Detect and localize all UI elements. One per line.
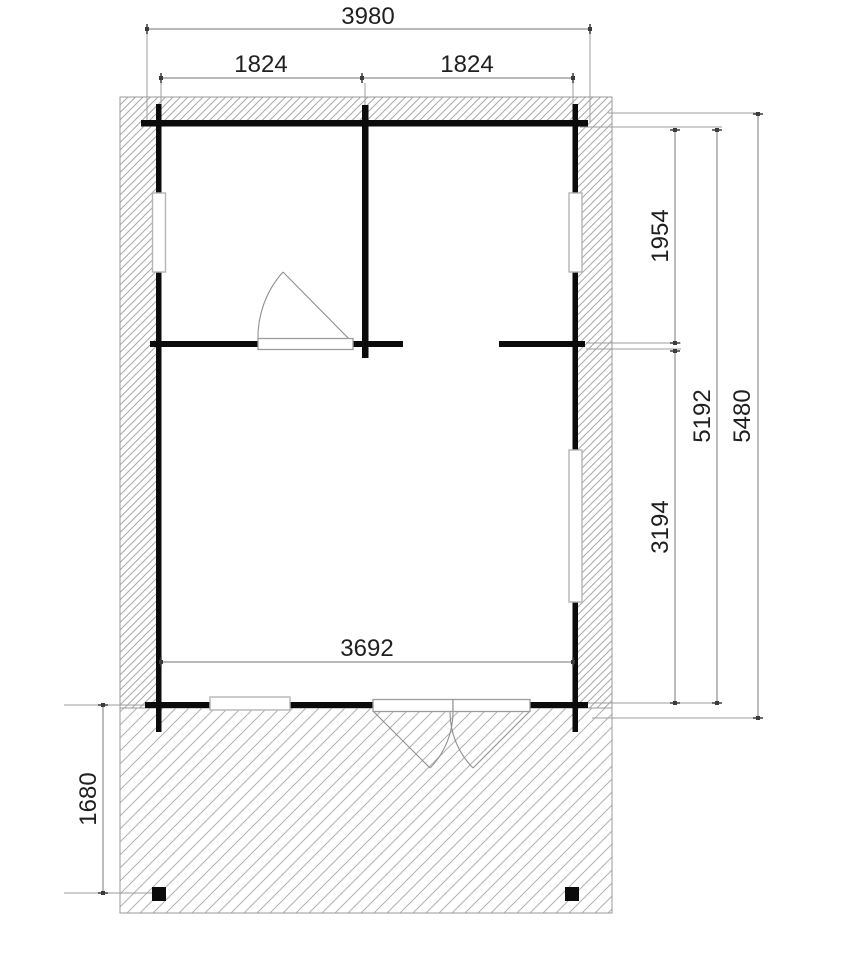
dim-overall-length: 5480 xyxy=(729,112,763,720)
dim-terrace-depth-label: 1680 xyxy=(75,772,102,825)
right-wall-window-lower xyxy=(569,450,582,602)
dim-bay-right-label: 1824 xyxy=(440,51,493,78)
floor-plan-drawing: 3980 1824 1824 1954 3194 5192 xyxy=(0,0,868,955)
wall-interior-segment-right xyxy=(499,341,585,347)
right-wall-window-upper xyxy=(569,193,582,272)
dim-right-depth-lower-label: 3194 xyxy=(647,500,674,553)
terrace-post-right xyxy=(565,887,579,901)
dim-bay-widths: 1824 1824 xyxy=(159,51,575,83)
dim-right-depth-lower: 3194 xyxy=(647,349,680,705)
dim-interior-width-label: 3692 xyxy=(340,635,393,662)
dim-interior-length: 5192 xyxy=(689,128,722,705)
terrace-post-left xyxy=(152,887,166,901)
left-wall-window xyxy=(153,193,166,272)
wall-front-segment-left xyxy=(145,702,210,708)
dim-bay-left-label: 1824 xyxy=(234,51,287,78)
wall-interior-segment-left xyxy=(150,341,258,347)
terrace-deck-hatch xyxy=(120,708,612,913)
dim-overall-width: 3980 xyxy=(145,3,592,34)
front-door-left-panel xyxy=(373,700,453,712)
dim-overall-length-label: 5480 xyxy=(729,389,756,442)
wall-front-segment-mid xyxy=(290,702,373,708)
dim-right-depth-upper: 1954 xyxy=(647,128,680,345)
dim-overall-width-label: 3980 xyxy=(341,3,394,30)
front-door-right-panel xyxy=(453,700,530,712)
wall-interior-segment-mid xyxy=(353,341,403,347)
floor-plan-page: 3980 1824 1824 1954 3194 5192 xyxy=(0,0,868,955)
wall-partition-vertical xyxy=(362,105,369,358)
dim-right-depth-upper-label: 1954 xyxy=(647,209,674,262)
interior-door-panel xyxy=(258,339,353,350)
dim-interior-length-label: 5192 xyxy=(689,389,716,442)
wall-front-segment-right xyxy=(530,702,588,708)
dim-terrace-depth: 1680 xyxy=(75,703,108,895)
front-wall-window xyxy=(210,697,290,710)
